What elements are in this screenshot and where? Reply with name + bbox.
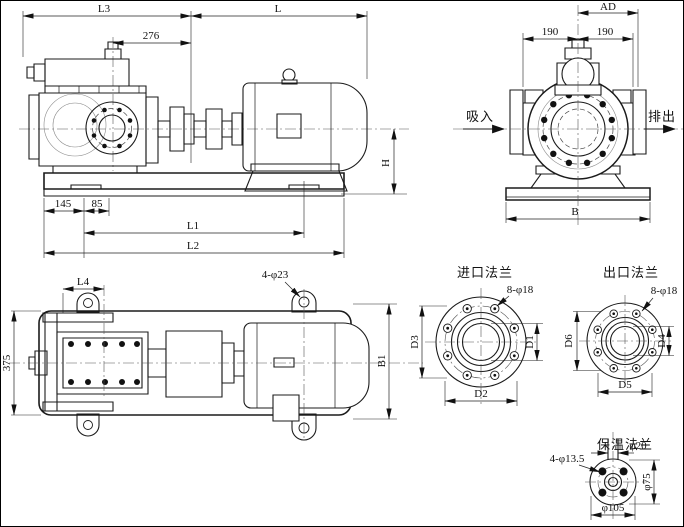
dim-label-d105: φ105 [602,502,625,514]
side-view-dimensions: L3 L 276 H 145 85 L1 L2 [23,3,407,258]
insulation-flange-view: 保温法兰 φ20 4-φ13.5 φ75 φ105 [550,432,660,522]
lug-hole [84,421,93,430]
inlet-flange-view: 进口法兰 8-φ18 D3 D1 D2 [409,265,543,406]
lifting-eye [283,69,295,81]
lug-hole [84,299,93,308]
coupling [146,97,242,163]
leader-4-d23 [285,282,300,297]
discharge-label: 排出 [648,109,676,124]
suction-label: 吸入 [466,109,494,124]
outlet-flange-title: 出口法兰 [603,265,659,280]
dim-label-L4: L4 [77,276,90,288]
baseplate-lower [44,189,344,196]
front-cover-bolts [92,108,133,149]
side-view: L3 L 276 H 145 85 L1 L2 [19,3,409,258]
inlet-holes-label: 8-φ18 [507,284,534,296]
motor-body [243,83,367,171]
dim-label-145: 145 [55,198,72,210]
dim-label-AD: AD [600,1,616,13]
outlet-holes-label: 8-φ18 [651,285,678,297]
front-cover-hub [99,115,125,141]
junction-box [273,395,299,421]
top-view: L4 4-φ23 375 B1 [1,269,423,441]
baseplate-upper [44,173,344,189]
casing-top-flange [45,86,146,93]
motor-top-body [244,323,369,408]
suction-flange-plate [510,90,523,154]
dim-label-D3: D3 [409,335,421,349]
dim-label-85: 85 [92,198,104,210]
dim-label-D1: D1 [524,335,536,348]
motor-pedestal [245,171,347,191]
dim-label-4-d23: 4-φ23 [262,269,289,281]
dim-label-D2: D2 [474,388,487,400]
relief-valve-body [45,59,129,86]
casing-left-plate [29,95,39,159]
outlet-flange-view: 出口法兰 8-φ18 D6 D4 D5 [563,265,678,397]
dim-label-L1: L1 [187,220,199,232]
dim-label-d75: φ75 [641,473,653,491]
dim-label-L: L [275,3,282,15]
flange-bolt-ticks [59,86,139,93]
dim-label-190-right: 190 [597,26,614,38]
pump-installation-drawing: L3 L 276 H 145 85 L1 L2 [0,0,684,527]
motor-feet [251,164,339,171]
top-extension-lines [23,11,367,163]
dim-label-L3: L3 [98,3,111,15]
relief-adjuster [27,67,34,78]
front-cover-flange [86,102,138,154]
dim-label-H: H [380,159,392,167]
pump-pedestal [53,166,137,173]
front-cover-bolt-circle [93,109,132,148]
dim-label-B1: B1 [376,355,388,368]
motor-endbells [255,83,331,171]
base-frame [44,173,344,196]
coupling-guard [166,331,222,397]
bore-phantom-inner [53,103,97,147]
pump-side-body [27,42,146,173]
motor-top [244,323,369,421]
dim-label-375: 375 [1,354,13,371]
shaft-step2 [234,351,244,376]
bracket-plate-bottom [43,402,113,411]
dim-label-B: B [571,206,578,218]
dim-label-L2: L2 [187,240,199,252]
inlet-flange-title: 进口法兰 [457,265,513,280]
dim-label-190-left: 190 [542,26,559,38]
discharge-flange-plate [633,90,646,154]
dim-label-D5: D5 [618,379,632,391]
dim-label-4-d13-5: 4-φ13.5 [550,453,585,465]
dim-label-d20: φ20 [629,440,647,452]
dim-label-D4: D4 [656,334,668,348]
front-view: 吸入 排出 AD 190 190 B [453,1,683,225]
outlet-holes-leader [642,298,653,311]
dim-label-D6: D6 [563,334,575,348]
bracket-plate-top [43,313,113,322]
coupling-top [148,331,244,397]
relief-gland [34,64,45,81]
dim-label-276: 276 [143,30,160,42]
drawing-svg: L3 L 276 H 145 85 L1 L2 [1,1,684,527]
pump-top-body [29,313,148,411]
motor-nameplate [277,114,301,138]
